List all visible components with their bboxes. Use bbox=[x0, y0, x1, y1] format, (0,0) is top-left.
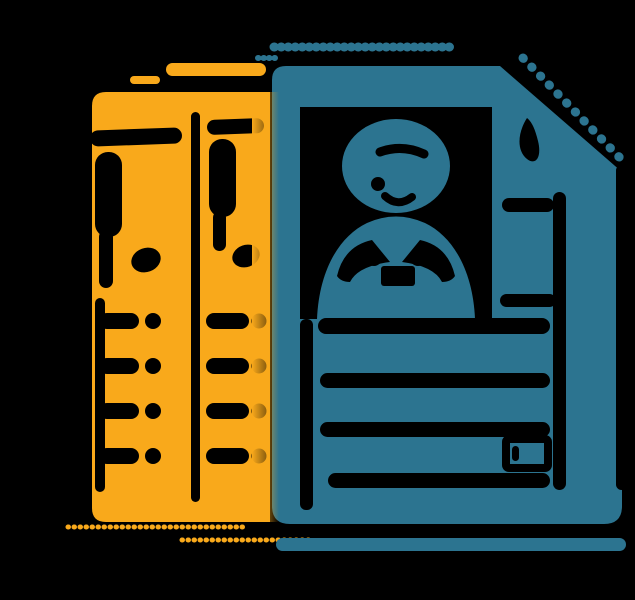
cv-right-margin-line bbox=[616, 165, 627, 490]
avatar-tie bbox=[381, 266, 415, 286]
page2-vertical-stroke bbox=[209, 139, 236, 217]
yellow-small-dash bbox=[130, 76, 160, 84]
bullet-bar bbox=[206, 448, 249, 464]
bullet-dot bbox=[145, 358, 161, 374]
page1-heading-dash bbox=[90, 127, 183, 146]
yellow-highlight-pill bbox=[166, 63, 266, 76]
yellow-teal-seam bbox=[252, 92, 279, 522]
cv-documents-graphic bbox=[0, 0, 635, 600]
bullet-bar bbox=[99, 313, 139, 329]
avatar-photo bbox=[300, 107, 492, 319]
cv-short-line-1 bbox=[502, 198, 554, 212]
resume-illustration bbox=[0, 0, 635, 600]
cv-text-line-3 bbox=[320, 422, 550, 437]
yellow-back-pages bbox=[90, 92, 270, 522]
avatar-eye bbox=[371, 177, 385, 191]
bullet-dot bbox=[145, 313, 161, 329]
bullet-dot bbox=[145, 448, 161, 464]
avatar-collar-dot-right bbox=[410, 250, 426, 266]
cv-text-line-4 bbox=[328, 473, 550, 488]
cv-text-line-1 bbox=[318, 318, 550, 334]
teal-cv-page bbox=[272, 66, 627, 524]
accent-marks-bottom bbox=[68, 527, 626, 551]
cv-left-margin-line bbox=[300, 319, 313, 510]
bullet-bar bbox=[99, 448, 139, 464]
cv-text-line-2 bbox=[320, 373, 550, 388]
yellow-page-divider bbox=[191, 112, 200, 502]
avatar-collar-dot-left bbox=[366, 250, 382, 266]
page1-vertical-stroke bbox=[95, 152, 122, 237]
bullet-bar bbox=[206, 403, 249, 419]
teal-ground-bar bbox=[276, 538, 626, 551]
detail-box-tick bbox=[512, 446, 519, 461]
bullet-bar bbox=[206, 358, 249, 374]
bullet-bar bbox=[99, 358, 139, 374]
page1-vertical-tail bbox=[99, 230, 113, 288]
cv-short-line-2 bbox=[500, 294, 556, 307]
cv-sidebar-divider bbox=[553, 192, 566, 490]
bullet-dot bbox=[145, 403, 161, 419]
page2-vertical-tail bbox=[213, 211, 226, 251]
bullet-bar bbox=[99, 403, 139, 419]
bullet-bar bbox=[206, 313, 249, 329]
